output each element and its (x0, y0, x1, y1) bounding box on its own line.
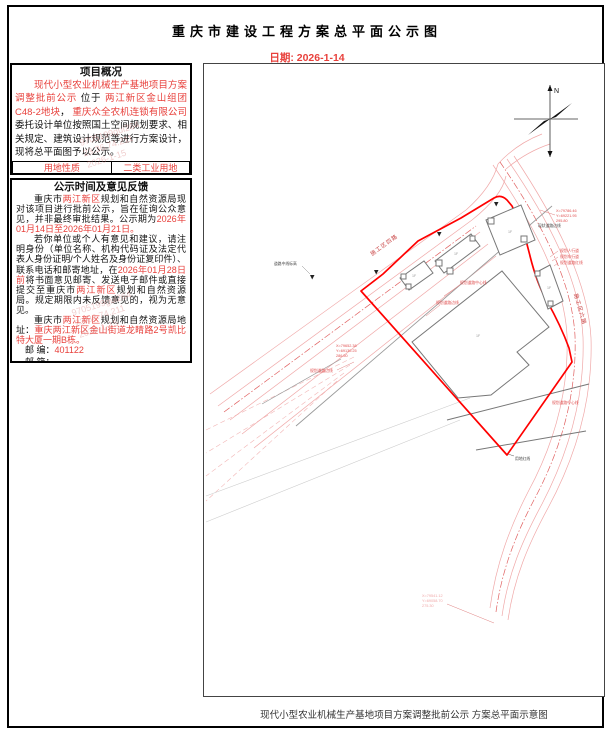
annotation-label: 规划道路中心线 (460, 280, 487, 285)
annotation-label: 规划道路红线 (560, 260, 583, 265)
table-cell-value: 二类工业用地 (111, 161, 189, 175)
feedback-paragraph-3: 重庆市两江新区规划和自然资源局地址：重庆两江新区金山街道龙睛路2号凯比特大厦一期… (16, 315, 186, 345)
annotation-label: 现状道路边线 (538, 223, 561, 228)
mailbox-label: 邮 箱： (25, 357, 55, 363)
district-text: 两江新区 (63, 194, 101, 204)
annotation-label: 规划道路中心线 (552, 400, 579, 405)
postcode-label: 邮 编： (25, 345, 55, 355)
north-label: N (554, 88, 559, 95)
project-description: 现代小型农业机械生产基地项目方案调整批前公示 位于 两江新区金山组团C48-2地… (15, 79, 187, 160)
company-name-text: 重庆众全农机连锁有限公司 (72, 107, 187, 118)
district-text: 两江新区 (63, 315, 101, 325)
coord-label: Y=69221.95 (556, 214, 577, 218)
postcode-line: 邮 编：401122 (16, 345, 186, 357)
description-text: ， (60, 107, 72, 118)
feedback-paragraph-1: 重庆市两江新区规划和自然资源局现对该项目进行批前公示，旨在征询公众意见，并非最终… (16, 194, 186, 234)
description-text: 位于 (77, 93, 105, 104)
road-west-centerline (224, 226, 476, 412)
site-plan-panel: 1F 1F 1F 1F 1F N (203, 63, 605, 697)
page-title: 重庆市建设工程方案总平面公示图 (0, 21, 614, 40)
project-overview-panel: 项目概况 现代小型农业机械生产基地项目方案调整批前公示 位于 两江新区金山组团C… (10, 63, 192, 175)
road-name-west: 施工区四路 (368, 232, 399, 258)
coord-label: 286.50 (336, 354, 348, 358)
table-cell-label: 用地性质 (13, 161, 112, 175)
coord-label: X=79652.38 (336, 344, 357, 348)
north-arrow: N (514, 85, 578, 157)
annotation-label: 规划人行道 (560, 248, 579, 253)
annotation-label: 规划道路边线 (436, 300, 459, 305)
coord-label: X=79541.12 (422, 594, 443, 598)
plan-caption: 现代小型农业机械生产基地项目方案调整批前公示 方案总平面示意图 (203, 707, 605, 721)
existing-road-lines (206, 206, 589, 522)
land-info-table: 用地性质 二类工业用地 用地面积 32281平方米 规划容积率（总计容建筑面积）… (12, 161, 190, 175)
annotation-label: 规划车行道 (560, 254, 579, 259)
table-row: 用地性质 二类工业用地 (13, 161, 190, 175)
coord-label: Y=69058.70 (422, 599, 443, 603)
overview-header: 项目概况 (12, 65, 190, 79)
description-text: 委托设计单位按照国土空间规划要求、相关规定、建筑设计规范等进行方案设计，现将总平… (15, 120, 187, 158)
coord-label: X=79786.46 (556, 209, 577, 213)
coord-label: 275.30 (422, 604, 434, 608)
feedback-header: 公示时间及意见反馈 (12, 180, 190, 194)
annotation-label: 用地红线 (515, 456, 530, 461)
annotation-label: 道路中线标高 (274, 261, 297, 266)
feedback-text: 重庆市 (34, 194, 63, 204)
feedback-panel: 公示时间及意见反馈 重庆市两江新区规划和自然资源局现对该项目进行批前公示，旨在征… (10, 178, 192, 363)
bureau-address-text: 重庆两江新区金山街道龙睛路2号凯比特大厦一期B栋。 (16, 325, 186, 345)
feedback-paragraph-2: 若你单位或个人有意见和建议，请注明身份（单位名称、机构代码证及法定代表人身份证明… (16, 234, 186, 315)
building-outline (412, 271, 549, 398)
annotation-label: 规划道路边线 (310, 368, 333, 373)
mailbox-line: 邮 箱： (16, 357, 186, 363)
road-fan-lines (206, 357, 354, 501)
feedback-text: 重庆市 (34, 315, 63, 325)
site-plan-drawing: 1F 1F 1F 1F 1F N (204, 64, 604, 696)
building-outlines (400, 205, 563, 398)
road-name-east: 施工区六路 (572, 292, 589, 325)
district-text: 两江新区 (76, 285, 116, 295)
coord-label: Y=69130.25 (336, 349, 357, 353)
postcode-value: 401122 (55, 345, 84, 355)
notice-sheet: 重庆市建设工程方案总平面公示图 日期: 2026-1-14 项目概况 现代小型农… (0, 0, 614, 739)
coord-label: 295.80 (556, 219, 568, 223)
